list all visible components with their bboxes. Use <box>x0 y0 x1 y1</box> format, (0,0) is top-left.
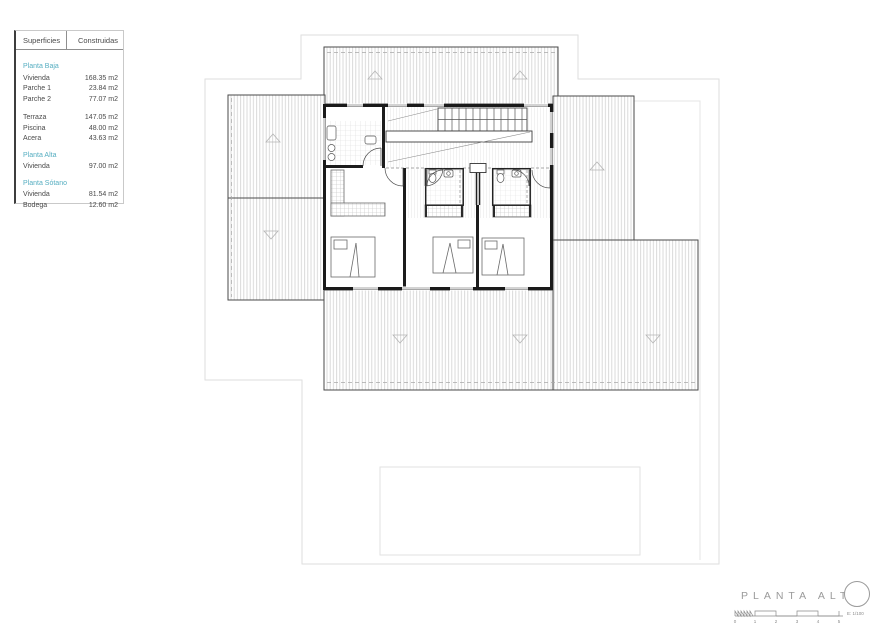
surface-row-label: Vivienda <box>23 162 50 173</box>
surface-row-label: Terraza <box>23 113 46 124</box>
bed-1 <box>331 237 375 277</box>
surface-item-row <box>16 105 123 113</box>
surface-row-value: 168.35 m2 <box>85 74 118 85</box>
surface-row-label: Vivienda <box>23 74 50 85</box>
surface-row-label: Planta Alta <box>23 151 56 162</box>
roof-left-upper <box>228 95 325 198</box>
surface-row-label: Parche 2 <box>23 95 51 106</box>
scale-tick: 2 <box>775 619 778 624</box>
surface-row-label: Planta Baja <box>23 62 59 73</box>
surface-section-row: Planta Alta <box>16 151 123 162</box>
surface-table: Superficies Construidas Planta BajaVivie… <box>14 30 124 204</box>
surface-row-label: Bodega <box>23 201 47 212</box>
surface-item-row: Parche 277.07 m2 <box>16 95 123 106</box>
bed-2 <box>433 237 473 273</box>
surface-item-row: Parche 123.84 m2 <box>16 84 123 95</box>
floor-plan-sheet: Superficies Construidas Planta BajaVivie… <box>0 0 880 640</box>
scale-tick: 0 <box>734 619 737 624</box>
roof-top <box>324 47 558 104</box>
house-core <box>323 104 554 291</box>
staircase <box>438 108 527 131</box>
surface-row-label: Parche 1 <box>23 84 51 95</box>
surface-item-row: Terraza147.05 m2 <box>16 113 123 124</box>
scale-tick: 3 <box>796 619 799 624</box>
pool-outline <box>380 467 640 555</box>
surface-row-value: 12.60 m2 <box>89 201 118 212</box>
header-divider <box>66 31 67 49</box>
plan-title: PLANTA ALTA <box>741 590 851 602</box>
surface-row-label: Vivienda <box>23 190 50 201</box>
scale-tick: 5 <box>838 619 841 624</box>
surface-table-rows: Planta BajaVivienda168.35 m2Parche 123.8… <box>16 50 123 211</box>
duct-box <box>470 164 486 173</box>
surface-table-col1: Superficies <box>23 36 60 45</box>
surface-item-row: Acera43.63 m2 <box>16 134 123 145</box>
surface-section-row: Planta Baja <box>16 62 123 73</box>
surface-row-value: 147.05 m2 <box>85 113 118 124</box>
surface-item-row: Vivienda168.35 m2 <box>16 74 123 85</box>
surface-item-row: Piscina48.00 m2 <box>16 124 123 135</box>
surface-row-label: Planta Sótano <box>23 179 67 190</box>
surface-row-value: 97.00 m2 <box>89 162 118 173</box>
surface-table-header: Superficies Construidas <box>16 31 123 50</box>
surface-row-value: 23.84 m2 <box>89 84 118 95</box>
surface-row-label: Piscina <box>23 124 46 135</box>
surface-row-value: 81.54 m2 <box>89 190 118 201</box>
surface-row-value: 77.07 m2 <box>89 95 118 106</box>
roof-right-upper <box>553 96 634 240</box>
surface-section-row: Planta Sótano <box>16 179 123 190</box>
roof-left-lower <box>228 198 325 300</box>
surface-item-row: Vivienda97.00 m2 <box>16 162 123 173</box>
scale-tick: 4 <box>817 619 820 624</box>
scale-bar: E: 1/100 012345 <box>733 604 873 630</box>
scale-tick: 1 <box>754 619 757 624</box>
surface-row-label: Acera <box>23 134 41 145</box>
surface-row-value: 43.63 m2 <box>89 134 118 145</box>
roof-bottom-right <box>553 240 698 390</box>
surface-row-value: 48.00 m2 <box>89 124 118 135</box>
bed-3 <box>482 238 524 275</box>
floor-plan-drawing <box>0 0 880 640</box>
scale-label: E: 1/100 <box>847 611 864 616</box>
scale-bar-graphic <box>733 604 845 618</box>
surface-item-row: Bodega12.60 m2 <box>16 201 123 212</box>
surface-table-col2: Construidas <box>78 36 118 45</box>
roof-bottom <box>324 290 553 390</box>
surface-item-row: Vivienda81.54 m2 <box>16 190 123 201</box>
